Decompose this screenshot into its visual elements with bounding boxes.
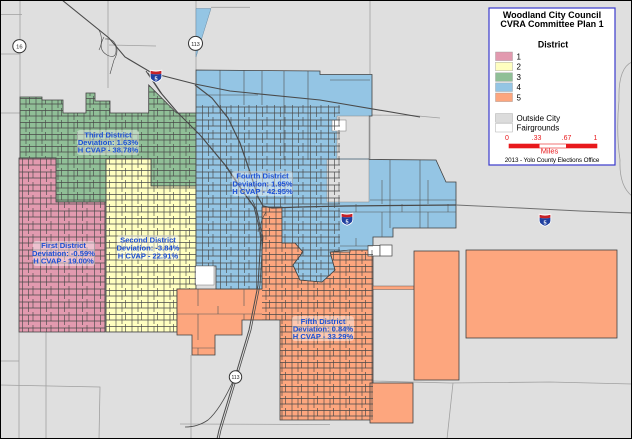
svg-text:4: 4	[517, 83, 522, 92]
svg-text:H CVAP - 22.91%: H CVAP - 22.91%	[118, 252, 179, 261]
svg-text:Fairgrounds: Fairgrounds	[517, 124, 560, 133]
svg-text:H CVAP - 38.78%: H CVAP - 38.78%	[78, 146, 139, 155]
svg-text:1: 1	[517, 52, 522, 61]
svg-text:CVRA Committee Plan 1: CVRA Committee Plan 1	[500, 19, 603, 29]
svg-text:5: 5	[517, 93, 522, 102]
svg-text:0: 0	[505, 135, 509, 142]
svg-text:H CVAP - 33.29%: H CVAP - 33.29%	[293, 332, 354, 341]
svg-text:113: 113	[191, 42, 200, 48]
svg-text:113: 113	[232, 375, 240, 381]
svg-text:2: 2	[517, 63, 522, 72]
svg-text:H CVAP - 42.95%: H CVAP - 42.95%	[232, 187, 293, 196]
svg-text:.33: .33	[532, 135, 542, 142]
svg-text:District: District	[538, 40, 568, 50]
svg-text:Outside City: Outside City	[517, 114, 561, 123]
svg-text:2013 - Yolo County Elections O: 2013 - Yolo County Elections Office	[505, 157, 600, 164]
svg-text:5: 5	[154, 77, 157, 83]
svg-text:H CVAP - 19.00%: H CVAP - 19.00%	[33, 257, 94, 266]
svg-text:3: 3	[517, 73, 522, 82]
svg-text:16: 16	[16, 45, 22, 51]
svg-text:.67: .67	[562, 135, 572, 142]
svg-text:1: 1	[594, 135, 598, 142]
